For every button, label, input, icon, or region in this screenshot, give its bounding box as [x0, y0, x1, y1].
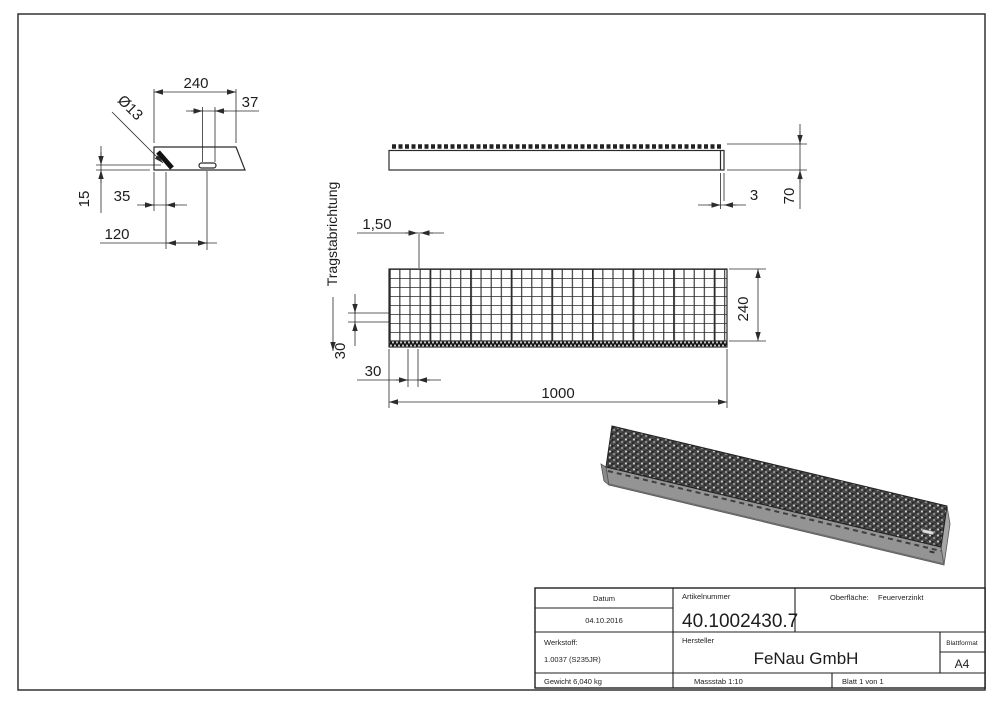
werkstoff-label: Werkstoff:: [544, 638, 577, 647]
blatt-value: Blatt 1 von 1: [842, 677, 884, 686]
blattformat-value: A4: [955, 657, 970, 671]
bearing-bar-direction-label: Tragstabrichtung: [324, 182, 340, 287]
technical-drawing-canvas: Ø13 240 37 15 35 120: [0, 0, 1000, 706]
serrated-nosing-band: [389, 341, 727, 347]
datum-label: Datum: [593, 594, 615, 603]
massstab-value: Massstab 1:10: [694, 677, 743, 686]
hersteller-label: Hersteller: [682, 636, 715, 645]
step-side-body: [389, 151, 724, 171]
oberflaeche-value: Feuerverzinkt: [878, 593, 924, 602]
dim-30h-label: 30: [365, 363, 382, 380]
dim-1000-label: 1000: [541, 385, 574, 402]
hersteller-value: FeNau GmbH: [754, 649, 859, 668]
artikelnummer-value: 40.1002430.7: [682, 611, 798, 632]
grating-mesh-heavy-bars: [389, 269, 727, 341]
datum-value: 04.10.2016: [585, 616, 623, 625]
title-block: Datum 04.10.2016 Artikelnummer 40.100243…: [535, 588, 985, 688]
dim-3-label: 3: [750, 187, 758, 204]
werkstoff-value: 1.0037 (S235JR): [544, 655, 601, 664]
fixing-slot: [199, 163, 216, 168]
dim-120-label: 120: [104, 226, 129, 243]
oberflaeche-label: Oberfläche:: [830, 593, 869, 602]
dim-240-label: 240: [183, 75, 208, 92]
gewicht-value: Gewicht 6,040 kg: [544, 677, 602, 686]
dim-70-label: 70: [781, 188, 798, 205]
dim-15-label: 15: [76, 191, 93, 208]
dim-240-depth-label: 240: [735, 296, 752, 321]
dim-35-label: 35: [114, 188, 131, 205]
artikelnummer-label: Artikelnummer: [682, 592, 731, 601]
dim-150-label: 1,50: [362, 216, 391, 233]
dim-30v-label: 30: [332, 343, 349, 360]
dim-37-label: 37: [242, 94, 259, 111]
blattformat-label: Blattformat: [946, 640, 978, 647]
